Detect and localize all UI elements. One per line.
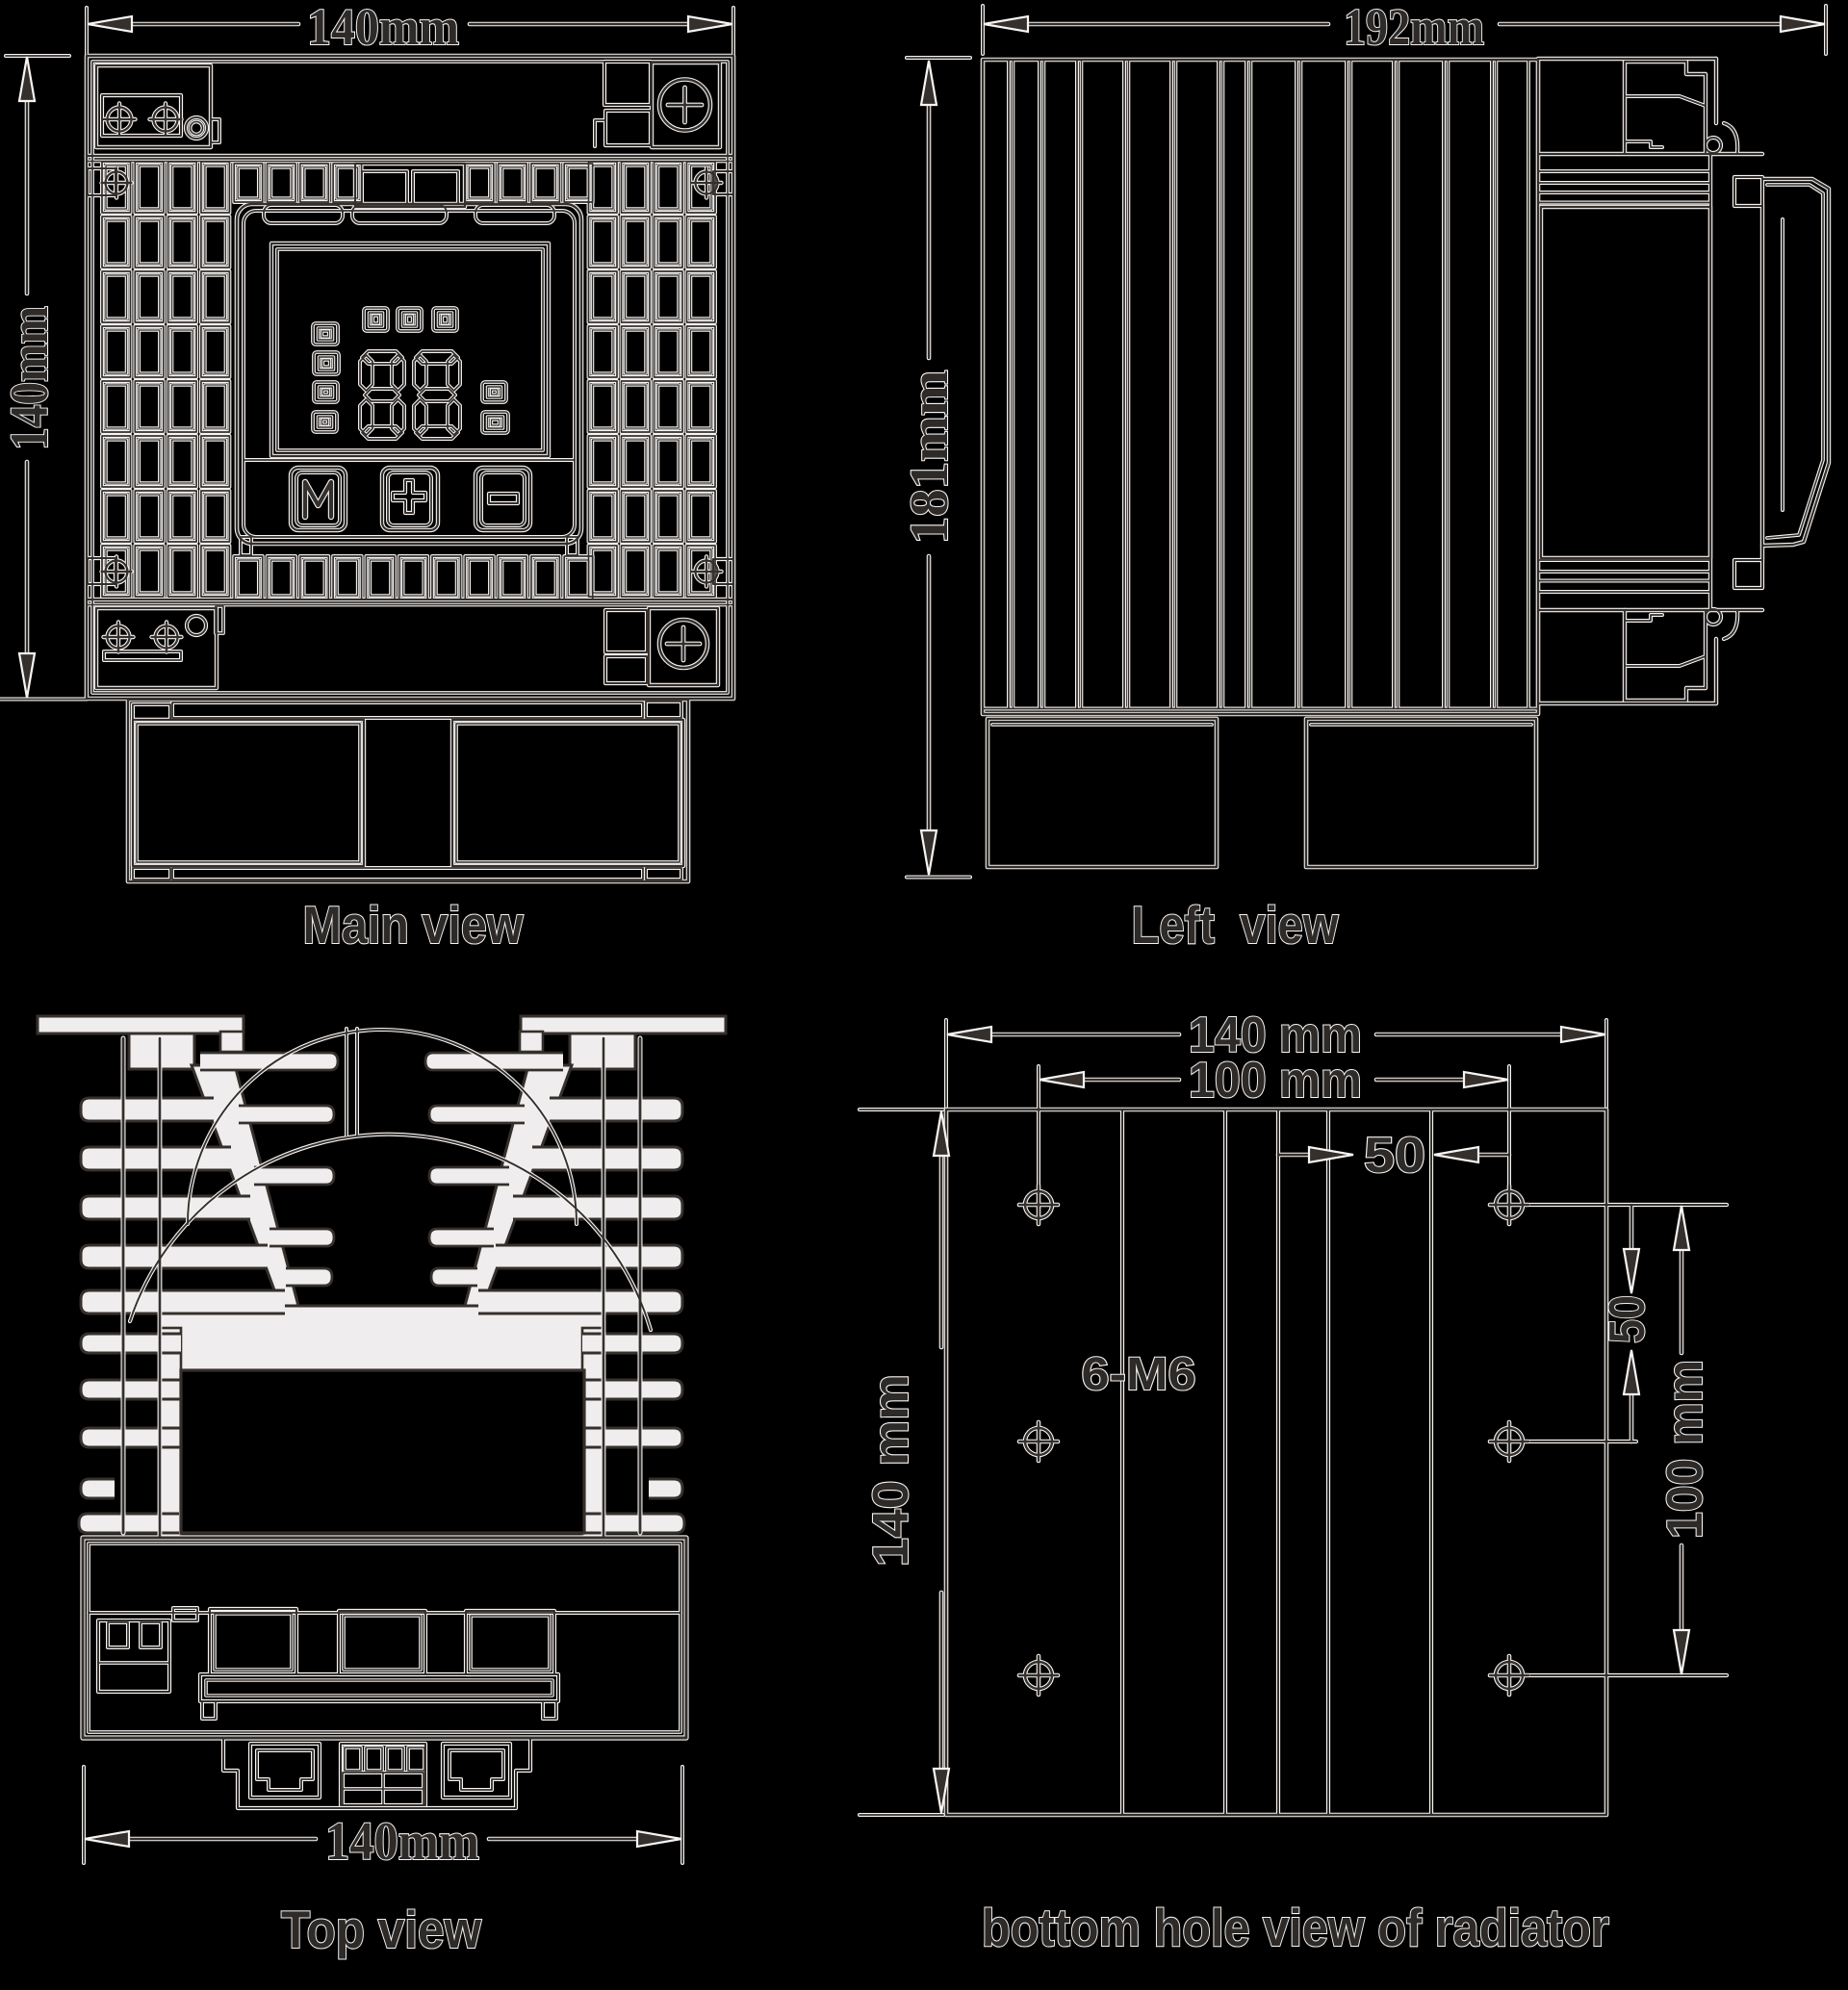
svg-text:140 mm: 140 mm: [863, 1374, 919, 1567]
svg-text:Main view: Main view: [303, 895, 524, 955]
svg-text:181mm: 181mm: [900, 370, 960, 545]
svg-text:100 mm: 100 mm: [1657, 1360, 1713, 1539]
svg-text:140mm: 140mm: [307, 0, 459, 56]
svg-text:50: 50: [1364, 1128, 1425, 1184]
svg-text:100 mm: 100 mm: [1189, 1053, 1362, 1109]
svg-text:Top view: Top view: [281, 1900, 481, 1959]
svg-text:6-M6: 6-M6: [1082, 1349, 1196, 1400]
svg-text:140mm: 140mm: [325, 1812, 479, 1872]
svg-text:140mm: 140mm: [0, 306, 60, 450]
svg-text:50: 50: [1600, 1295, 1655, 1343]
svg-text:bottom hole view of radiator: bottom hole view of radiator: [982, 1898, 1609, 1957]
svg-text:192mm: 192mm: [1344, 0, 1484, 56]
svg-text:Left view: Left view: [1132, 895, 1339, 955]
